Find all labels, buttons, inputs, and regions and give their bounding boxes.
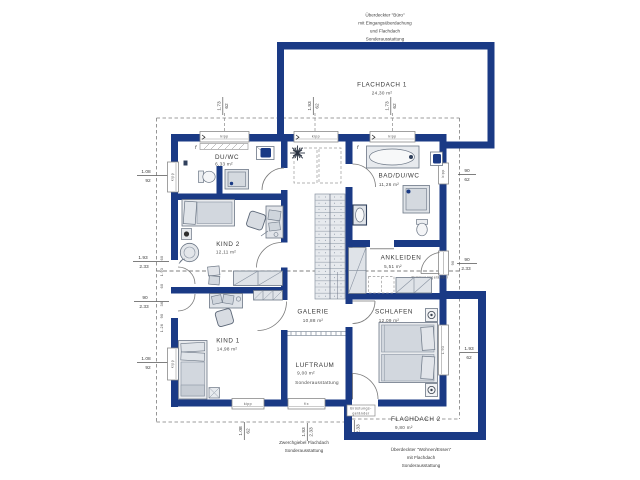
svg-text:6,33 m²: 6,33 m² <box>215 162 233 167</box>
svg-text:10,88 m²: 10,88 m² <box>303 318 324 323</box>
svg-text:Sonderausstattung: Sonderausstattung <box>366 37 405 42</box>
svg-text:62: 62 <box>466 355 472 361</box>
svg-text:kipp: kipp <box>441 169 445 177</box>
svg-text:mit Flachdach: mit Flachdach <box>407 455 436 460</box>
svg-text:90: 90 <box>160 314 164 319</box>
svg-text:kipp: kipp <box>388 134 396 138</box>
svg-text:1.08: 1.08 <box>238 426 244 436</box>
svg-text:2.33: 2.33 <box>139 304 149 310</box>
svg-text:KIND 2: KIND 2 <box>216 241 240 248</box>
svg-text:kipp: kipp <box>171 360 175 368</box>
svg-text:92: 92 <box>145 178 151 184</box>
svg-text:2.33: 2.33 <box>461 266 471 272</box>
svg-text:FLACHDACH 1: FLACHDACH 1 <box>357 82 407 89</box>
svg-text:Brüstungs-: Brüstungs- <box>350 407 372 411</box>
svg-text:11,26 m²: 11,26 m² <box>379 182 399 187</box>
svg-text:LUFTRAUM: LUFTRAUM <box>296 362 335 369</box>
svg-text:12,11 m²: 12,11 m² <box>216 250 236 255</box>
svg-text:1.93: 1.93 <box>160 268 164 277</box>
svg-text:Sonderausstattung: Sonderausstattung <box>285 448 324 453</box>
svg-text:SCHLAFEN: SCHLAFEN <box>375 309 413 316</box>
svg-text:1.73: 1.73 <box>217 101 223 111</box>
svg-text:Zwerchgiebel Flachdach: Zwerchgiebel Flachdach <box>279 440 329 445</box>
svg-text:ANKLEIDEN: ANKLEIDEN <box>381 255 422 262</box>
svg-text:1.93: 1.93 <box>307 101 313 111</box>
svg-text:60: 60 <box>160 256 164 261</box>
svg-text:1.26: 1.26 <box>160 324 164 333</box>
svg-text:1.08: 1.08 <box>141 169 151 175</box>
svg-text:und Flachdach: und Flachdach <box>370 29 401 34</box>
svg-text:1.93: 1.93 <box>464 346 474 352</box>
svg-text:1.93: 1.93 <box>138 255 148 261</box>
svg-text:90: 90 <box>464 257 470 263</box>
svg-text:92: 92 <box>145 365 151 371</box>
svg-text:GALERIE: GALERIE <box>297 309 328 316</box>
svg-text:Sonderausstattung: Sonderausstattung <box>402 463 441 468</box>
svg-text:kipp: kipp <box>312 134 320 138</box>
svg-text:KIND 1: KIND 1 <box>216 338 240 345</box>
svg-text:62: 62 <box>224 103 230 109</box>
svg-text:1.08: 1.08 <box>141 356 151 362</box>
svg-text:kipp: kipp <box>220 134 228 138</box>
svg-text:5,51 m²: 5,51 m² <box>384 264 402 269</box>
svg-text:90: 90 <box>464 168 470 174</box>
svg-text:2.33: 2.33 <box>309 427 315 437</box>
svg-text:90: 90 <box>451 261 455 266</box>
svg-text:DU/WC: DU/WC <box>215 154 239 161</box>
svg-text:BAD/DU/WC: BAD/DU/WC <box>379 173 420 180</box>
svg-text:62: 62 <box>315 103 321 109</box>
svg-text:Überdeckter "Wohnen/Essen": Überdeckter "Wohnen/Essen" <box>391 446 452 452</box>
svg-text:2.33: 2.33 <box>139 264 149 270</box>
svg-text:62: 62 <box>392 103 398 109</box>
svg-text:36: 36 <box>160 302 164 307</box>
svg-text:60: 60 <box>160 284 164 289</box>
svg-text:kipp: kipp <box>244 402 252 406</box>
svg-text:mit Eingangsüberdachung: mit Eingangsüberdachung <box>358 21 412 26</box>
svg-text:1.73: 1.73 <box>385 101 391 111</box>
svg-text:62: 62 <box>246 428 252 434</box>
svg-text:geländer: geländer <box>352 412 370 416</box>
svg-text:fix: fix <box>304 402 309 406</box>
svg-text:9,80 m²: 9,80 m² <box>395 425 413 430</box>
svg-text:kipp: kipp <box>171 173 175 181</box>
svg-text:FLACHDACH 2: FLACHDACH 2 <box>391 416 441 423</box>
svg-text:24,30 m²: 24,30 m² <box>372 91 393 96</box>
svg-text:Überdeckter "Büro": Überdeckter "Büro" <box>365 12 405 18</box>
svg-text:14,98 m²: 14,98 m² <box>217 347 238 352</box>
svg-text:Sonderausstattung: Sonderausstattung <box>295 380 339 385</box>
svg-text:1.93: 1.93 <box>301 427 307 437</box>
svg-text:9,00 m²: 9,00 m² <box>297 371 315 376</box>
svg-text:62: 62 <box>464 177 470 183</box>
svg-text:90: 90 <box>142 295 148 301</box>
